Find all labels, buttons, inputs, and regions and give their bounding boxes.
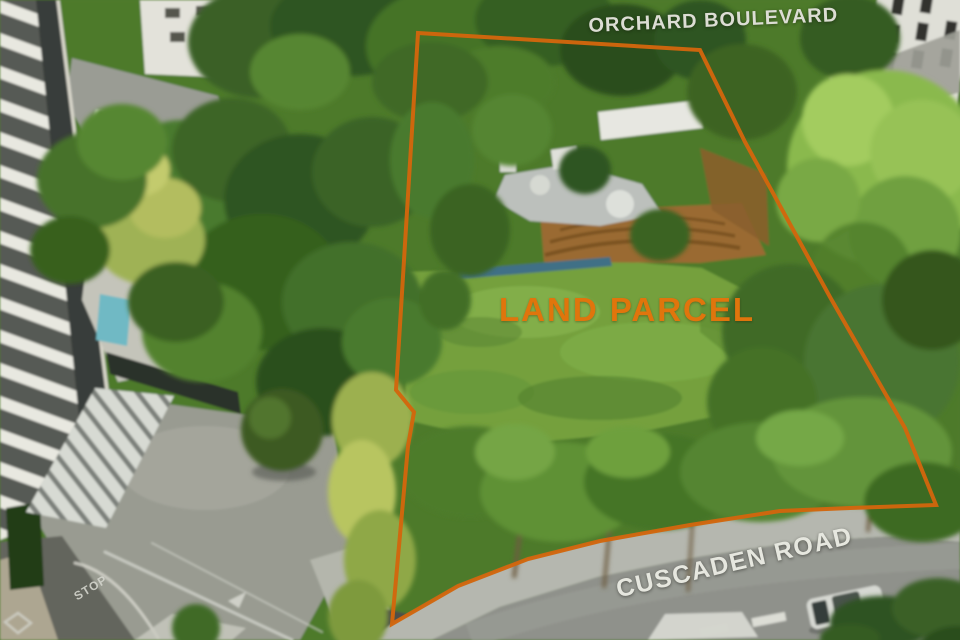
annotated-aerial-photo: ORCHARD BOULEVARD LAND PARCEL CUSCADEN R… — [0, 0, 960, 640]
swimming-pool — [96, 294, 131, 346]
land-parcel-label: LAND PARCEL — [499, 293, 755, 326]
